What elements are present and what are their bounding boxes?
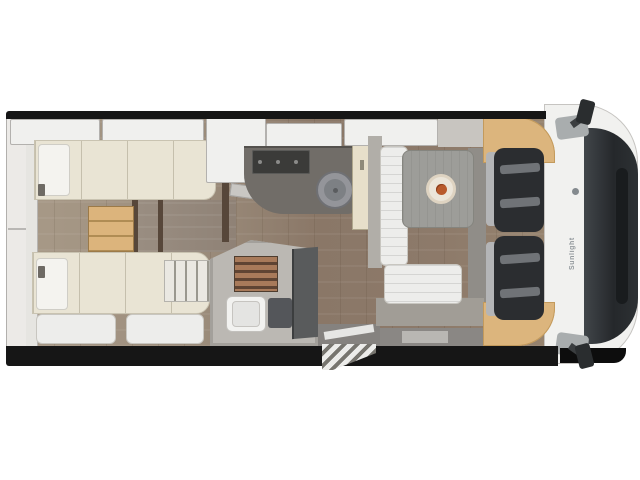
bed-steps — [88, 206, 134, 252]
sideboard-bottom-wall — [380, 328, 488, 346]
seat-cushion — [494, 236, 544, 320]
toilet-lid — [232, 301, 260, 327]
entry-threshold — [318, 324, 380, 346]
backrest-cushion-1 — [36, 314, 116, 344]
cassette-toilet — [226, 296, 266, 332]
side-wall-top — [6, 111, 546, 119]
cab-seat-passenger — [486, 146, 544, 234]
bathroom-door-open — [292, 247, 318, 339]
hob-knob — [258, 160, 262, 164]
front-wall-segment — [438, 119, 484, 147]
sideboard-insert — [402, 331, 448, 343]
brand-label: Sunlight — [569, 200, 583, 270]
hob-knob — [276, 160, 280, 164]
hob-knob — [294, 160, 298, 164]
bench-cushion-bottom — [384, 264, 462, 304]
floor-divider-2 — [158, 200, 163, 252]
bed-latch-1 — [38, 184, 45, 196]
flower-bowl — [426, 174, 456, 204]
overhead-locker-dinette — [344, 119, 438, 146]
bedside-shelf — [164, 260, 210, 302]
sink-drain — [333, 188, 338, 193]
flower-bloom — [436, 184, 447, 195]
floor-divider-3 — [222, 182, 229, 242]
toilet-cassette-unit — [268, 298, 292, 328]
hob — [252, 150, 310, 174]
windshield-hood — [584, 128, 638, 344]
shower-grate — [234, 256, 278, 292]
dinette-table — [402, 150, 474, 228]
bedroom-floor-aisle — [132, 200, 236, 252]
side-wall-bottom — [6, 346, 558, 366]
hood-groove — [616, 168, 628, 304]
seat-cushion — [494, 148, 544, 232]
cab-seat-driver — [486, 234, 544, 322]
round-sink — [316, 171, 354, 209]
motorhome-floorplan-render: Sunlight — [0, 0, 640, 480]
backrest-cushion-2 — [126, 314, 204, 344]
bed-latch-2 — [38, 266, 45, 278]
entry-door-edge — [324, 324, 375, 340]
brand-logo-dot — [572, 188, 579, 195]
wardrobe-handle — [360, 160, 364, 170]
